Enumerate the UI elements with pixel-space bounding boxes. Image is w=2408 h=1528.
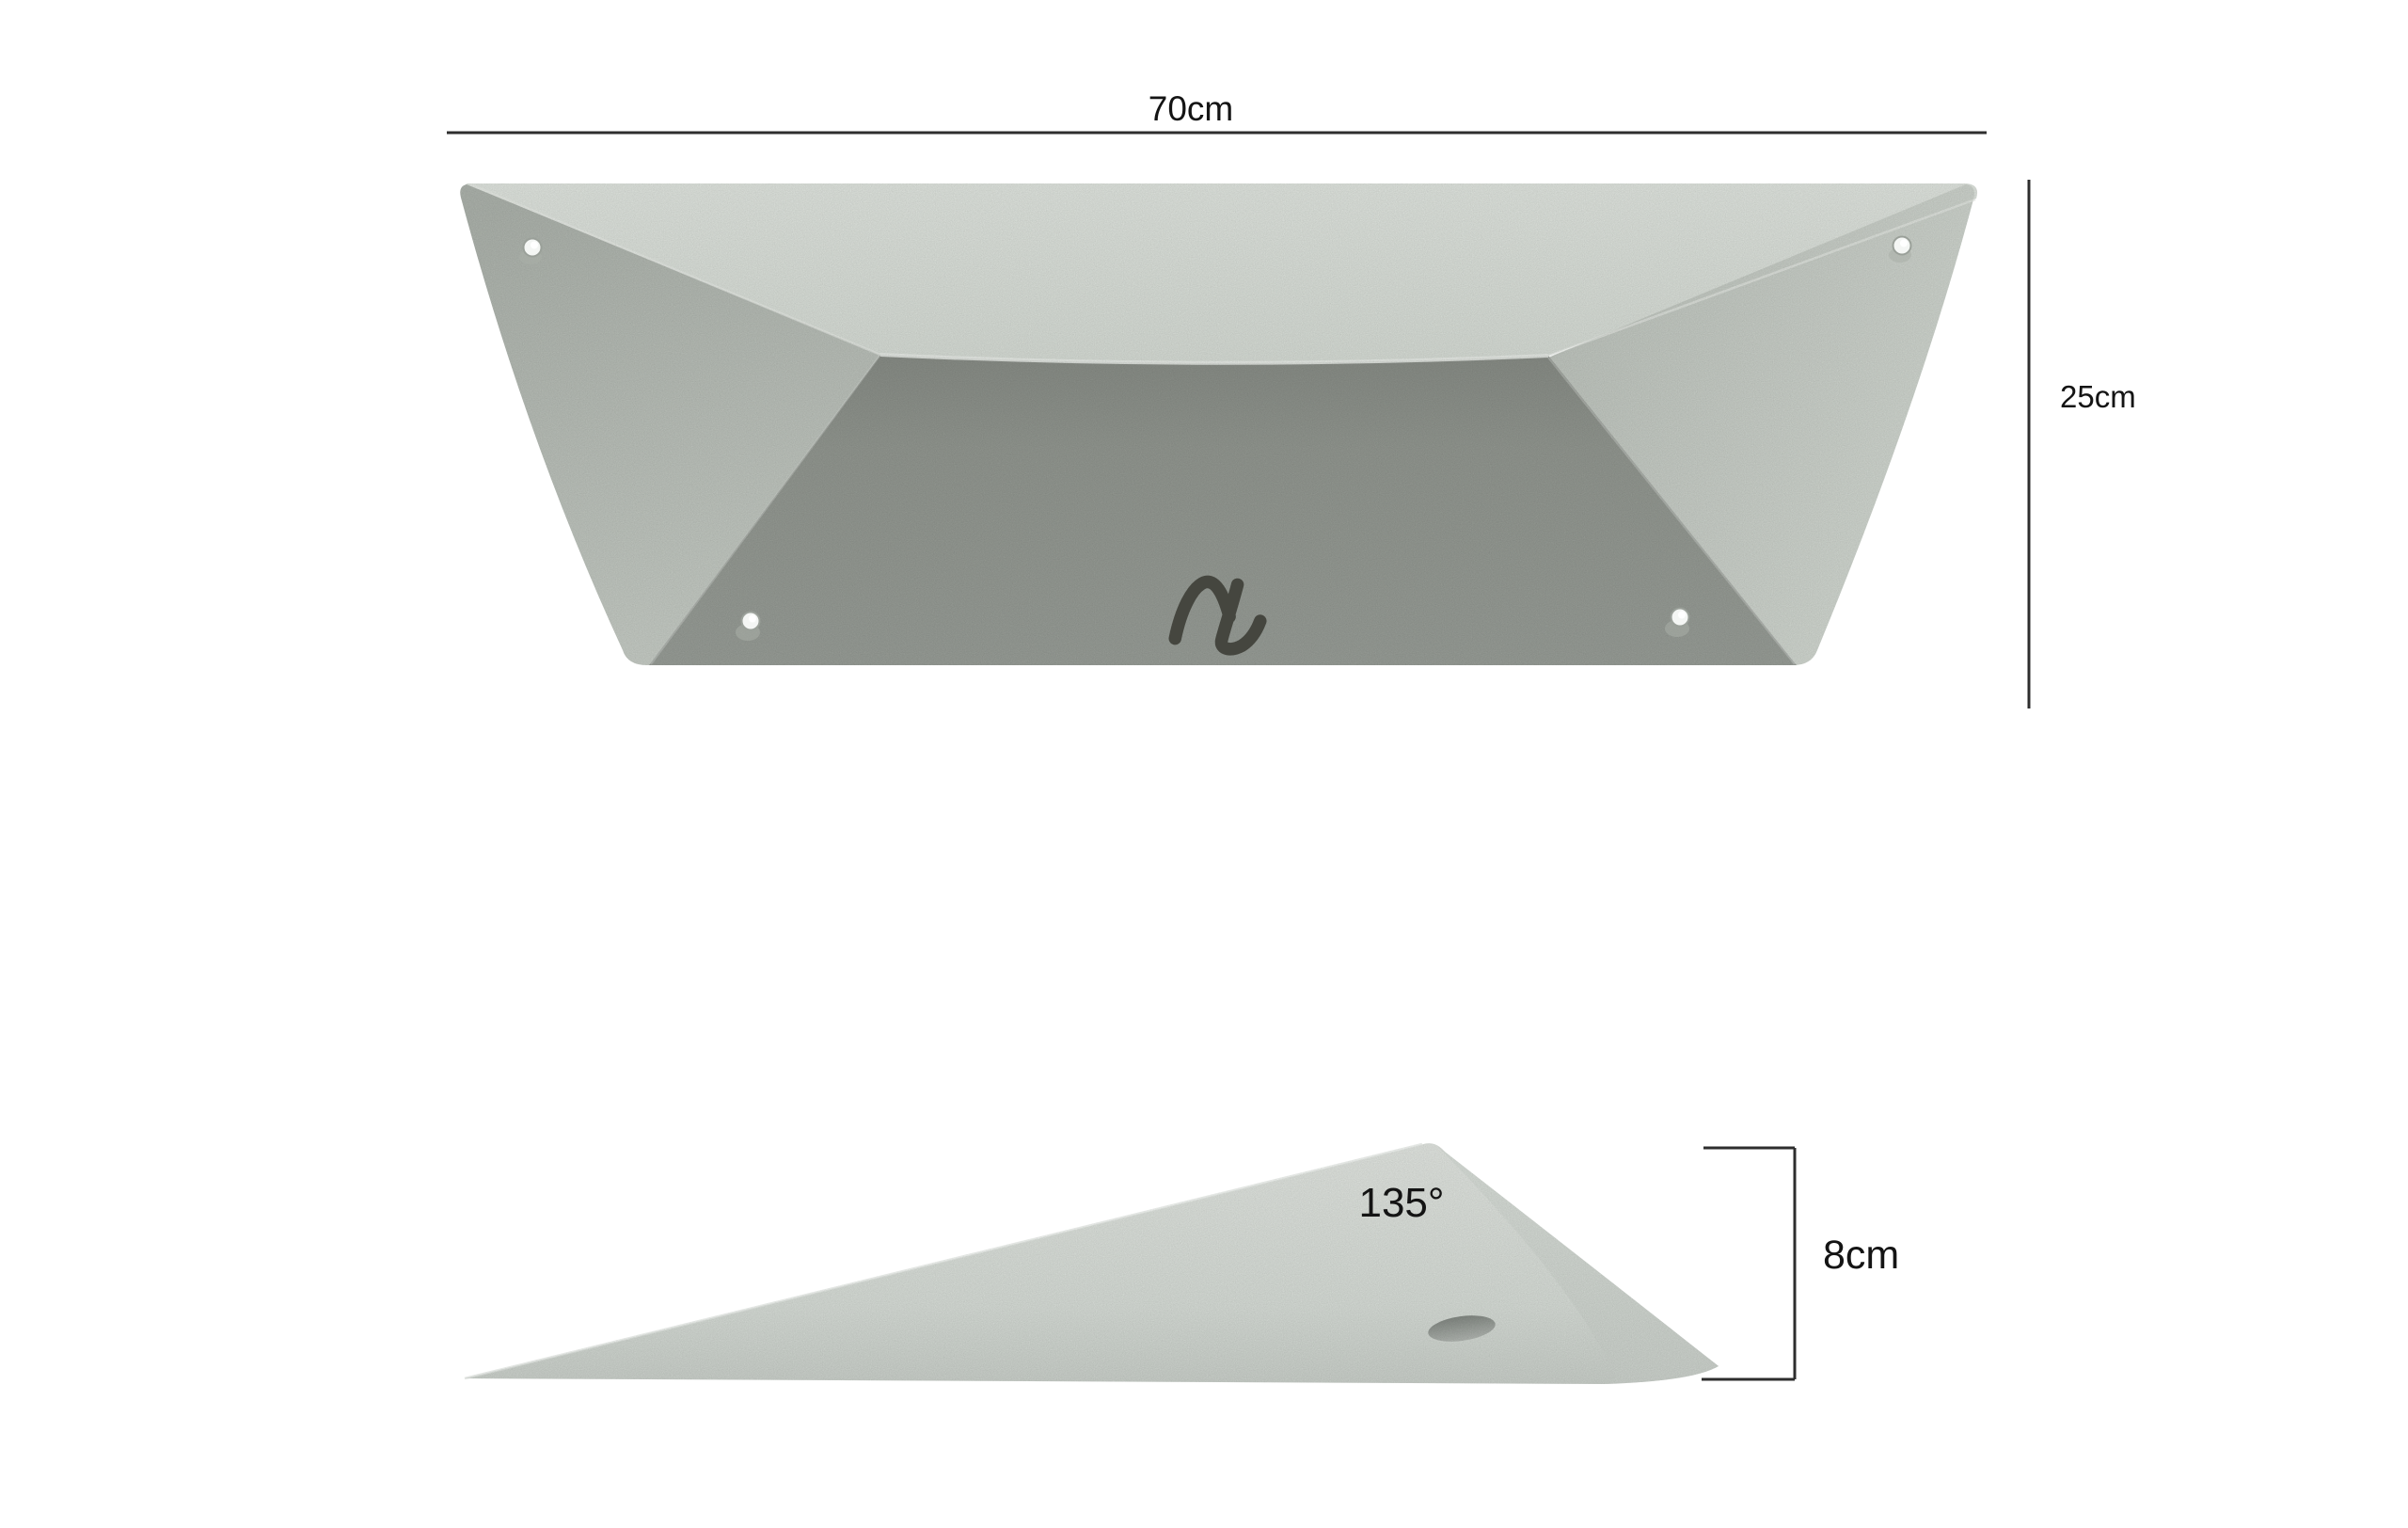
screw-hole-highlight: [749, 615, 756, 623]
side-view: 135° 8cm: [465, 1143, 1899, 1384]
angle-dimension-label: 135°: [1358, 1180, 1444, 1226]
thickness-dimension-label: 8cm: [1823, 1233, 1899, 1278]
screw-hole-highlight: [1900, 240, 1908, 247]
screw-hole-highlight: [531, 242, 538, 249]
volume-side-render: [465, 1143, 1719, 1384]
height-dimension-label: 25cm: [2060, 379, 2136, 414]
wedge-body: [465, 1143, 1719, 1384]
climbing-volume-diagram: 70cm 25cm: [0, 0, 2408, 1528]
width-dimension-label: 70cm: [1149, 89, 1233, 128]
thickness-dimension-bracket: [1702, 1148, 1795, 1379]
screw-hole-highlight: [1678, 612, 1686, 619]
front-view: 70cm 25cm: [447, 89, 2136, 708]
